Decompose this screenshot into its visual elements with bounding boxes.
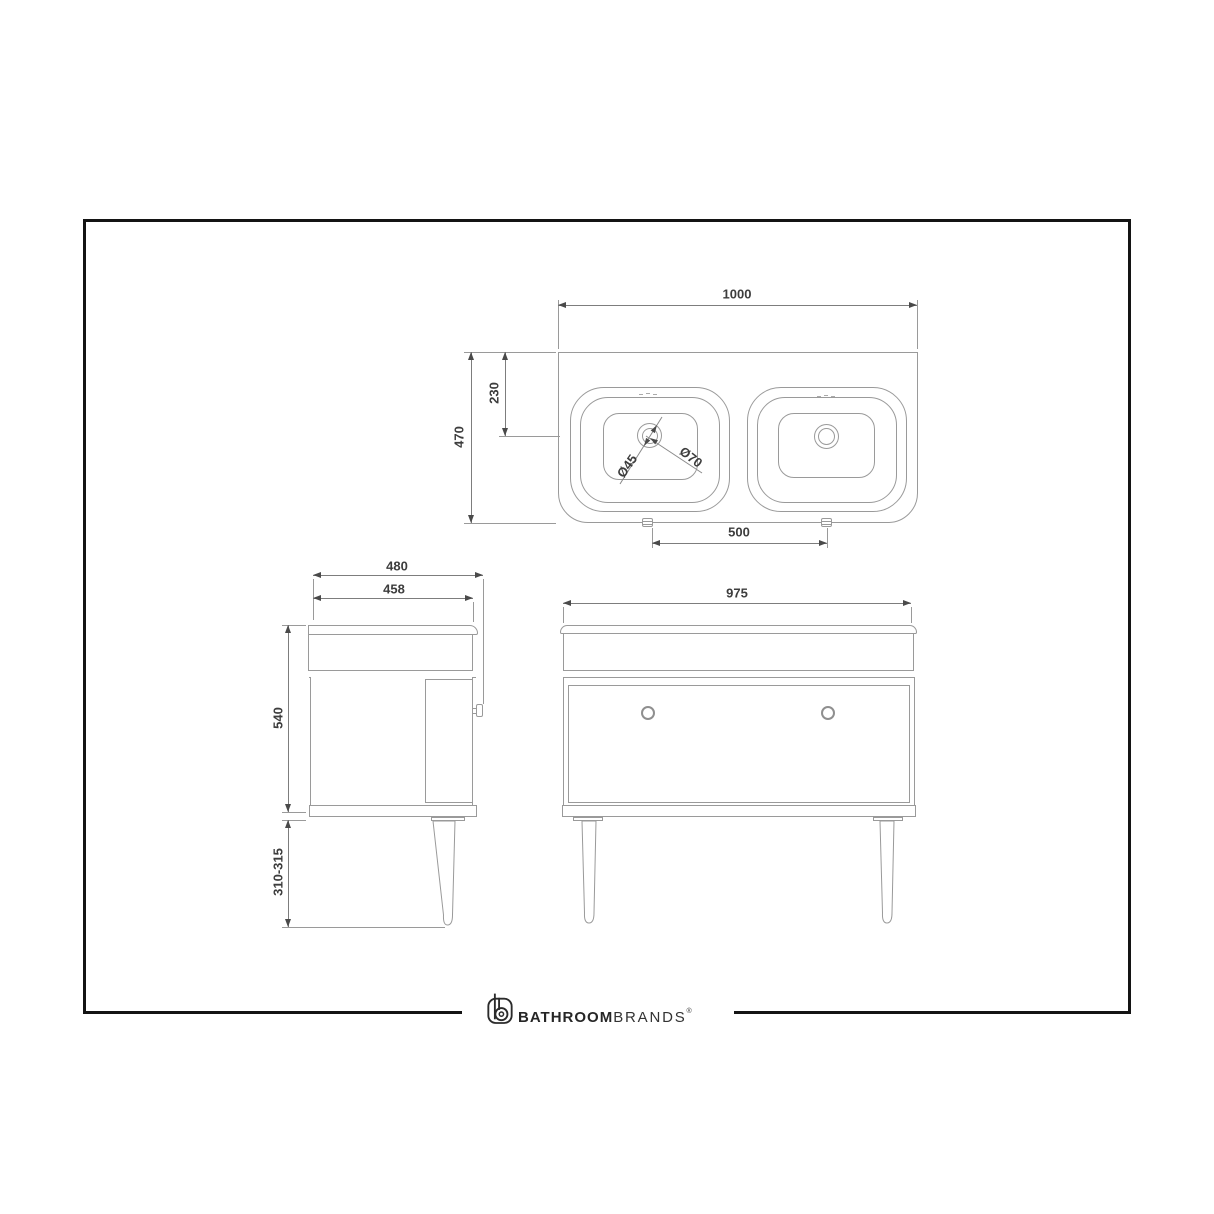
front-counter-slab (560, 625, 917, 634)
extension-line (282, 812, 306, 813)
dimension-line-975 (563, 603, 911, 604)
overflow-mark (817, 396, 821, 397)
fixing-clip-right (821, 518, 832, 527)
arrowhead (285, 804, 291, 812)
front-counter-apron (563, 634, 914, 671)
arrowhead (909, 302, 917, 308)
arrowhead (652, 540, 660, 546)
extension-line (499, 436, 560, 437)
drawer-knob-right (821, 706, 835, 720)
brand-name-bold: BATHROOM (518, 1010, 613, 1025)
front-top-rail-line (563, 677, 914, 678)
overflow-mark (824, 395, 828, 396)
arrowhead (502, 352, 508, 360)
brand-wordmark: BATHROOMBRANDS® (518, 1007, 692, 1027)
dim-basin-centres: 500 (726, 526, 752, 539)
extension-line (464, 523, 556, 524)
overflow-mark (646, 393, 650, 394)
dimension-line-1000 (558, 305, 917, 306)
overflow-mark (831, 396, 835, 397)
arrowhead (819, 540, 827, 546)
dimension-line-230 (505, 352, 506, 436)
brand-name-light: BRANDS (613, 1010, 686, 1025)
arrowhead (558, 302, 566, 308)
waste-hole-inner-circle (818, 428, 835, 445)
extension-line (282, 927, 445, 928)
front-plinth (562, 805, 916, 817)
front-drawer-front (568, 685, 910, 803)
side-plinth (309, 805, 477, 817)
arrowhead (475, 572, 483, 578)
fixing-clip-left (642, 518, 653, 527)
dim-overall-width: 1000 (721, 288, 754, 301)
dimension-line-458 (313, 598, 473, 599)
dim-tap-setback: 230 (488, 380, 501, 406)
arrowhead (468, 352, 474, 360)
dim-cabinet-height: 540 (272, 705, 285, 731)
drawer-knob-left (641, 706, 655, 720)
registered-trademark: ® (687, 1008, 692, 1015)
dimension-line-310-315 (288, 820, 289, 927)
overflow-mark (653, 394, 657, 395)
side-leg-mount (431, 817, 465, 821)
extension-line (827, 528, 828, 548)
front-leg-mount-left (573, 817, 603, 821)
arrowhead (468, 515, 474, 523)
extension-line (464, 352, 556, 353)
extension-line (473, 602, 474, 622)
side-counter-apron (308, 635, 473, 671)
technical-drawing-sheet: 1000 470 230 500 Ø45 Ø70 (0, 0, 1214, 1214)
dimension-line-540 (288, 625, 289, 812)
dim-cabinet-width: 975 (724, 587, 750, 600)
dimension-line-470 (471, 352, 472, 523)
b-logo-icon (486, 992, 514, 1026)
dimension-line-480 (313, 575, 483, 576)
arrowhead (285, 919, 291, 927)
front-body-side-left (563, 677, 564, 805)
dim-leg-height: 310-315 (272, 846, 285, 898)
overflow-mark (639, 394, 643, 395)
arrowhead (502, 428, 508, 436)
dim-cabinet-depth: 458 (381, 583, 407, 596)
extension-line (483, 579, 484, 704)
arrowhead (903, 600, 911, 606)
drawing-border-frame (83, 219, 1131, 1014)
dim-overall-depth: 470 (453, 424, 466, 450)
arrowhead (285, 625, 291, 633)
front-leg-mount-right (873, 817, 903, 821)
side-counter-slab (308, 625, 478, 635)
dim-depth-overall: 480 (384, 560, 410, 573)
arrowhead (313, 595, 321, 601)
arrowhead (313, 572, 321, 578)
side-door-knob (476, 704, 483, 717)
arrowhead (465, 595, 473, 601)
extension-line (917, 300, 918, 349)
arrowhead (285, 820, 291, 828)
arrowhead (563, 600, 571, 606)
dimension-line-500 (652, 543, 827, 544)
extension-line (563, 607, 564, 623)
extension-line (911, 607, 912, 623)
front-body-side-right (914, 677, 915, 805)
tap-hole-inner-circle (642, 428, 658, 444)
side-door-panel (425, 679, 473, 803)
